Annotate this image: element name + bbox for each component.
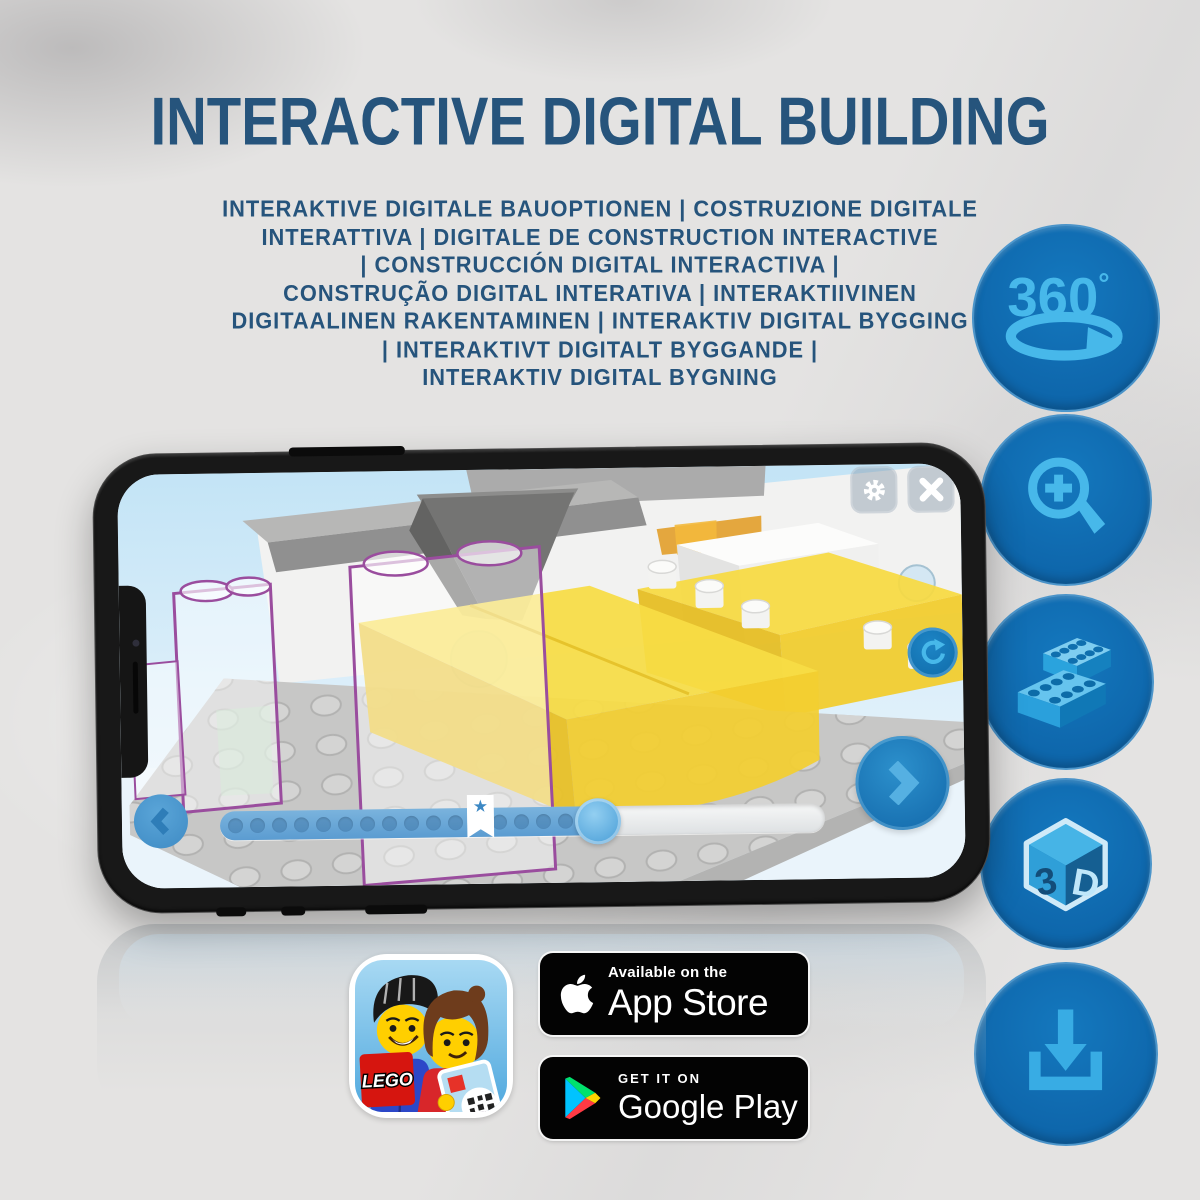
phone-screen: ★ [117, 463, 966, 889]
svg-text:LEGO: LEGO [361, 1069, 413, 1092]
chevron-right-icon [884, 761, 921, 805]
rotate-icon [917, 637, 947, 667]
slider-fill [220, 806, 598, 840]
lego-logo: LEGO [359, 1052, 415, 1108]
google-play-name: Google Play [618, 1088, 798, 1126]
zoom-in-icon [1012, 446, 1120, 554]
lego-app-icon: LEGO [349, 954, 513, 1118]
3d-cube-icon: 3 D [1012, 810, 1120, 918]
feature-zoom [980, 414, 1152, 586]
apple-logo-icon [560, 972, 594, 1016]
phone-volume-button [281, 906, 305, 915]
app-store-badge[interactable]: Available on the App Store [540, 953, 808, 1035]
gear-icon [859, 475, 889, 505]
phone-volume-button [216, 907, 246, 916]
chevron-left-icon [149, 807, 173, 835]
camera-notch [119, 586, 149, 778]
phone-side-button [365, 905, 427, 915]
app-store-name: App Store [608, 982, 768, 1024]
feature-3d-view: 3 D [980, 778, 1152, 950]
minifigures-graphic: LEGO [355, 960, 507, 1112]
feature-bricks [978, 594, 1154, 770]
page-title: INTERACTIVE DIGITAL BUILDING [72, 82, 1128, 160]
promo-canvas: INTERACTIVE DIGITAL BUILDING INTERAKTIVE… [0, 0, 1200, 1200]
google-play-icon [560, 1076, 604, 1120]
slider-thumb[interactable] [575, 797, 622, 844]
google-play-tagline: GET IT ON [618, 1071, 798, 1086]
phone-power-button [289, 446, 405, 457]
slider-dots [228, 813, 595, 833]
close-icon [918, 476, 944, 502]
360-rotation-icon: 360° [991, 250, 1142, 386]
app-store-tagline: Available on the [608, 964, 768, 981]
stacked-bricks-icon [1011, 627, 1121, 737]
settings-button[interactable] [850, 466, 898, 514]
multilanguage-subtitle: INTERAKTIVE DIGITALE BAUOPTIONEN | COSTR… [183, 195, 1017, 391]
download-icon [1008, 996, 1123, 1111]
google-play-badge[interactable]: GET IT ON Google Play [540, 1057, 808, 1139]
feature-download [974, 962, 1158, 1146]
close-button[interactable] [907, 465, 955, 513]
phone-mockup: ★ [92, 442, 991, 914]
svg-text:360°: 360° [1007, 267, 1109, 328]
feature-360-rotation: 360° [972, 224, 1160, 412]
